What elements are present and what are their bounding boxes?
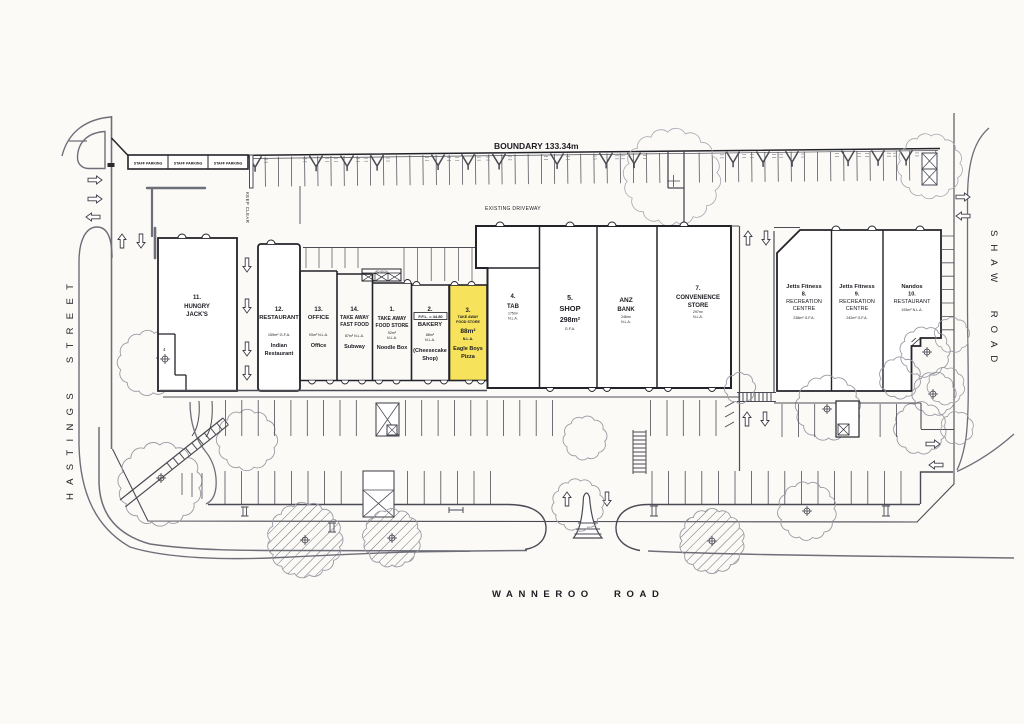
svg-text:STAFF PARKING: STAFF PARKING: [174, 162, 203, 166]
svg-text:5.: 5.: [567, 295, 573, 302]
svg-text:RESTAURANT: RESTAURANT: [894, 299, 932, 305]
svg-text:JACK'S: JACK'S: [186, 312, 208, 318]
svg-text:HASTINGS STREET: HASTINGS STREET: [65, 276, 76, 500]
svg-text:CENTRE: CENTRE: [846, 306, 869, 312]
svg-text:(Cheesecake: (Cheesecake: [413, 348, 447, 354]
svg-text:N.L.A.: N.L.A.: [693, 315, 703, 319]
svg-text:SHOP: SHOP: [559, 304, 580, 313]
svg-text:RESTAURANT: RESTAURANT: [259, 315, 299, 321]
svg-text:298m²: 298m²: [560, 317, 581, 324]
svg-text:8.: 8.: [802, 292, 807, 298]
svg-text:SHAW ROAD: SHAW ROAD: [988, 230, 999, 370]
svg-text:4.: 4.: [510, 294, 515, 300]
svg-text:10.: 10.: [908, 292, 916, 298]
svg-text:AD-SIGN: AD-SIGN: [375, 270, 388, 274]
svg-text:1.: 1.: [389, 307, 394, 313]
svg-text:STAFF PARKING: STAFF PARKING: [134, 162, 163, 166]
svg-text:TAB: TAB: [507, 304, 520, 310]
svg-text:193m² N.L.A.: 193m² N.L.A.: [901, 308, 922, 312]
svg-text:TAKE AWAY: TAKE AWAY: [378, 316, 407, 322]
svg-text:Restaurant: Restaurant: [265, 351, 294, 357]
svg-text:KEEP CLEAR: KEEP CLEAR: [245, 192, 250, 223]
svg-text:HUNGRY: HUNGRY: [184, 304, 210, 310]
svg-text:13.: 13.: [314, 307, 323, 313]
svg-text:BAKERY: BAKERY: [418, 322, 442, 328]
svg-text:Indian: Indian: [271, 343, 288, 349]
svg-text:93m² N.L.A.: 93m² N.L.A.: [309, 333, 328, 337]
svg-text:Nandos: Nandos: [901, 284, 922, 290]
svg-text:BOUNDARY 133.34m: BOUNDARY 133.34m: [494, 141, 579, 151]
svg-text:G.F.A.: G.F.A.: [565, 327, 576, 331]
svg-text:7.: 7.: [695, 286, 700, 292]
svg-text:RECREATION: RECREATION: [786, 299, 822, 305]
svg-text:CENTRE: CENTRE: [793, 306, 816, 312]
svg-text:87m² N.L.A.: 87m² N.L.A.: [345, 334, 364, 338]
svg-text:88m²: 88m²: [460, 328, 476, 335]
svg-text:F.F.L. = 44.80: F.F.L. = 44.80: [418, 314, 443, 319]
svg-text:14.: 14.: [350, 307, 359, 313]
svg-text:BANK: BANK: [617, 307, 635, 313]
svg-text:175m²: 175m²: [508, 312, 519, 316]
svg-text:TAKE AWAY: TAKE AWAY: [458, 315, 479, 319]
svg-text:88m²: 88m²: [426, 333, 435, 337]
svg-text:OFFICE: OFFICE: [308, 315, 329, 321]
svg-text:ANZ: ANZ: [619, 297, 632, 304]
svg-text:Jetts Fitness: Jetts Fitness: [839, 284, 874, 290]
svg-text:Office: Office: [311, 343, 327, 349]
svg-text:Shop): Shop): [422, 356, 438, 362]
svg-text:CONVENIENCE: CONVENIENCE: [676, 295, 720, 301]
svg-text:TAKE AWAY: TAKE AWAY: [340, 315, 369, 321]
svg-text:STAFF PARKING: STAFF PARKING: [214, 162, 243, 166]
svg-text:FAST FOOD: FAST FOOD: [340, 322, 369, 328]
svg-text:9.: 9.: [855, 292, 860, 298]
svg-text:N.L.A.: N.L.A.: [387, 336, 397, 340]
svg-text:N.L.A.: N.L.A.: [463, 337, 473, 341]
svg-text:Jetts Fitness: Jetts Fitness: [786, 284, 821, 290]
svg-text:N.L.A.: N.L.A.: [621, 320, 631, 324]
svg-text:92m²: 92m²: [388, 331, 397, 335]
svg-text:246m²: 246m²: [621, 315, 632, 319]
svg-text:STORE: STORE: [688, 303, 709, 309]
svg-text:Pizza: Pizza: [461, 354, 476, 360]
svg-text:FOOD STORE: FOOD STORE: [376, 323, 410, 329]
svg-text:RECREATION: RECREATION: [839, 299, 875, 305]
svg-text:159m² G.F.A.: 159m² G.F.A.: [268, 333, 290, 337]
svg-text:N.L.A.: N.L.A.: [508, 317, 518, 321]
svg-text:242m² G.F.A.: 242m² G.F.A.: [846, 316, 867, 320]
svg-text:WANNEROO ROAD: WANNEROO ROAD: [492, 589, 664, 600]
svg-text:Noodle Box: Noodle Box: [377, 345, 408, 351]
svg-text:3.: 3.: [465, 308, 470, 314]
svg-text:Eagle Boys: Eagle Boys: [453, 346, 483, 352]
svg-text:12.: 12.: [275, 307, 284, 313]
svg-text:N.L.A.: N.L.A.: [425, 338, 435, 342]
svg-text:11.: 11.: [193, 295, 201, 301]
svg-text:238m² G.F.A.: 238m² G.F.A.: [793, 316, 814, 320]
svg-text:Subway: Subway: [344, 344, 366, 350]
svg-text:FOOD STORE: FOOD STORE: [456, 320, 480, 324]
svg-text:EXISTING DRIVEWAY: EXISTING DRIVEWAY: [485, 206, 541, 212]
svg-text:297m²: 297m²: [693, 310, 704, 314]
